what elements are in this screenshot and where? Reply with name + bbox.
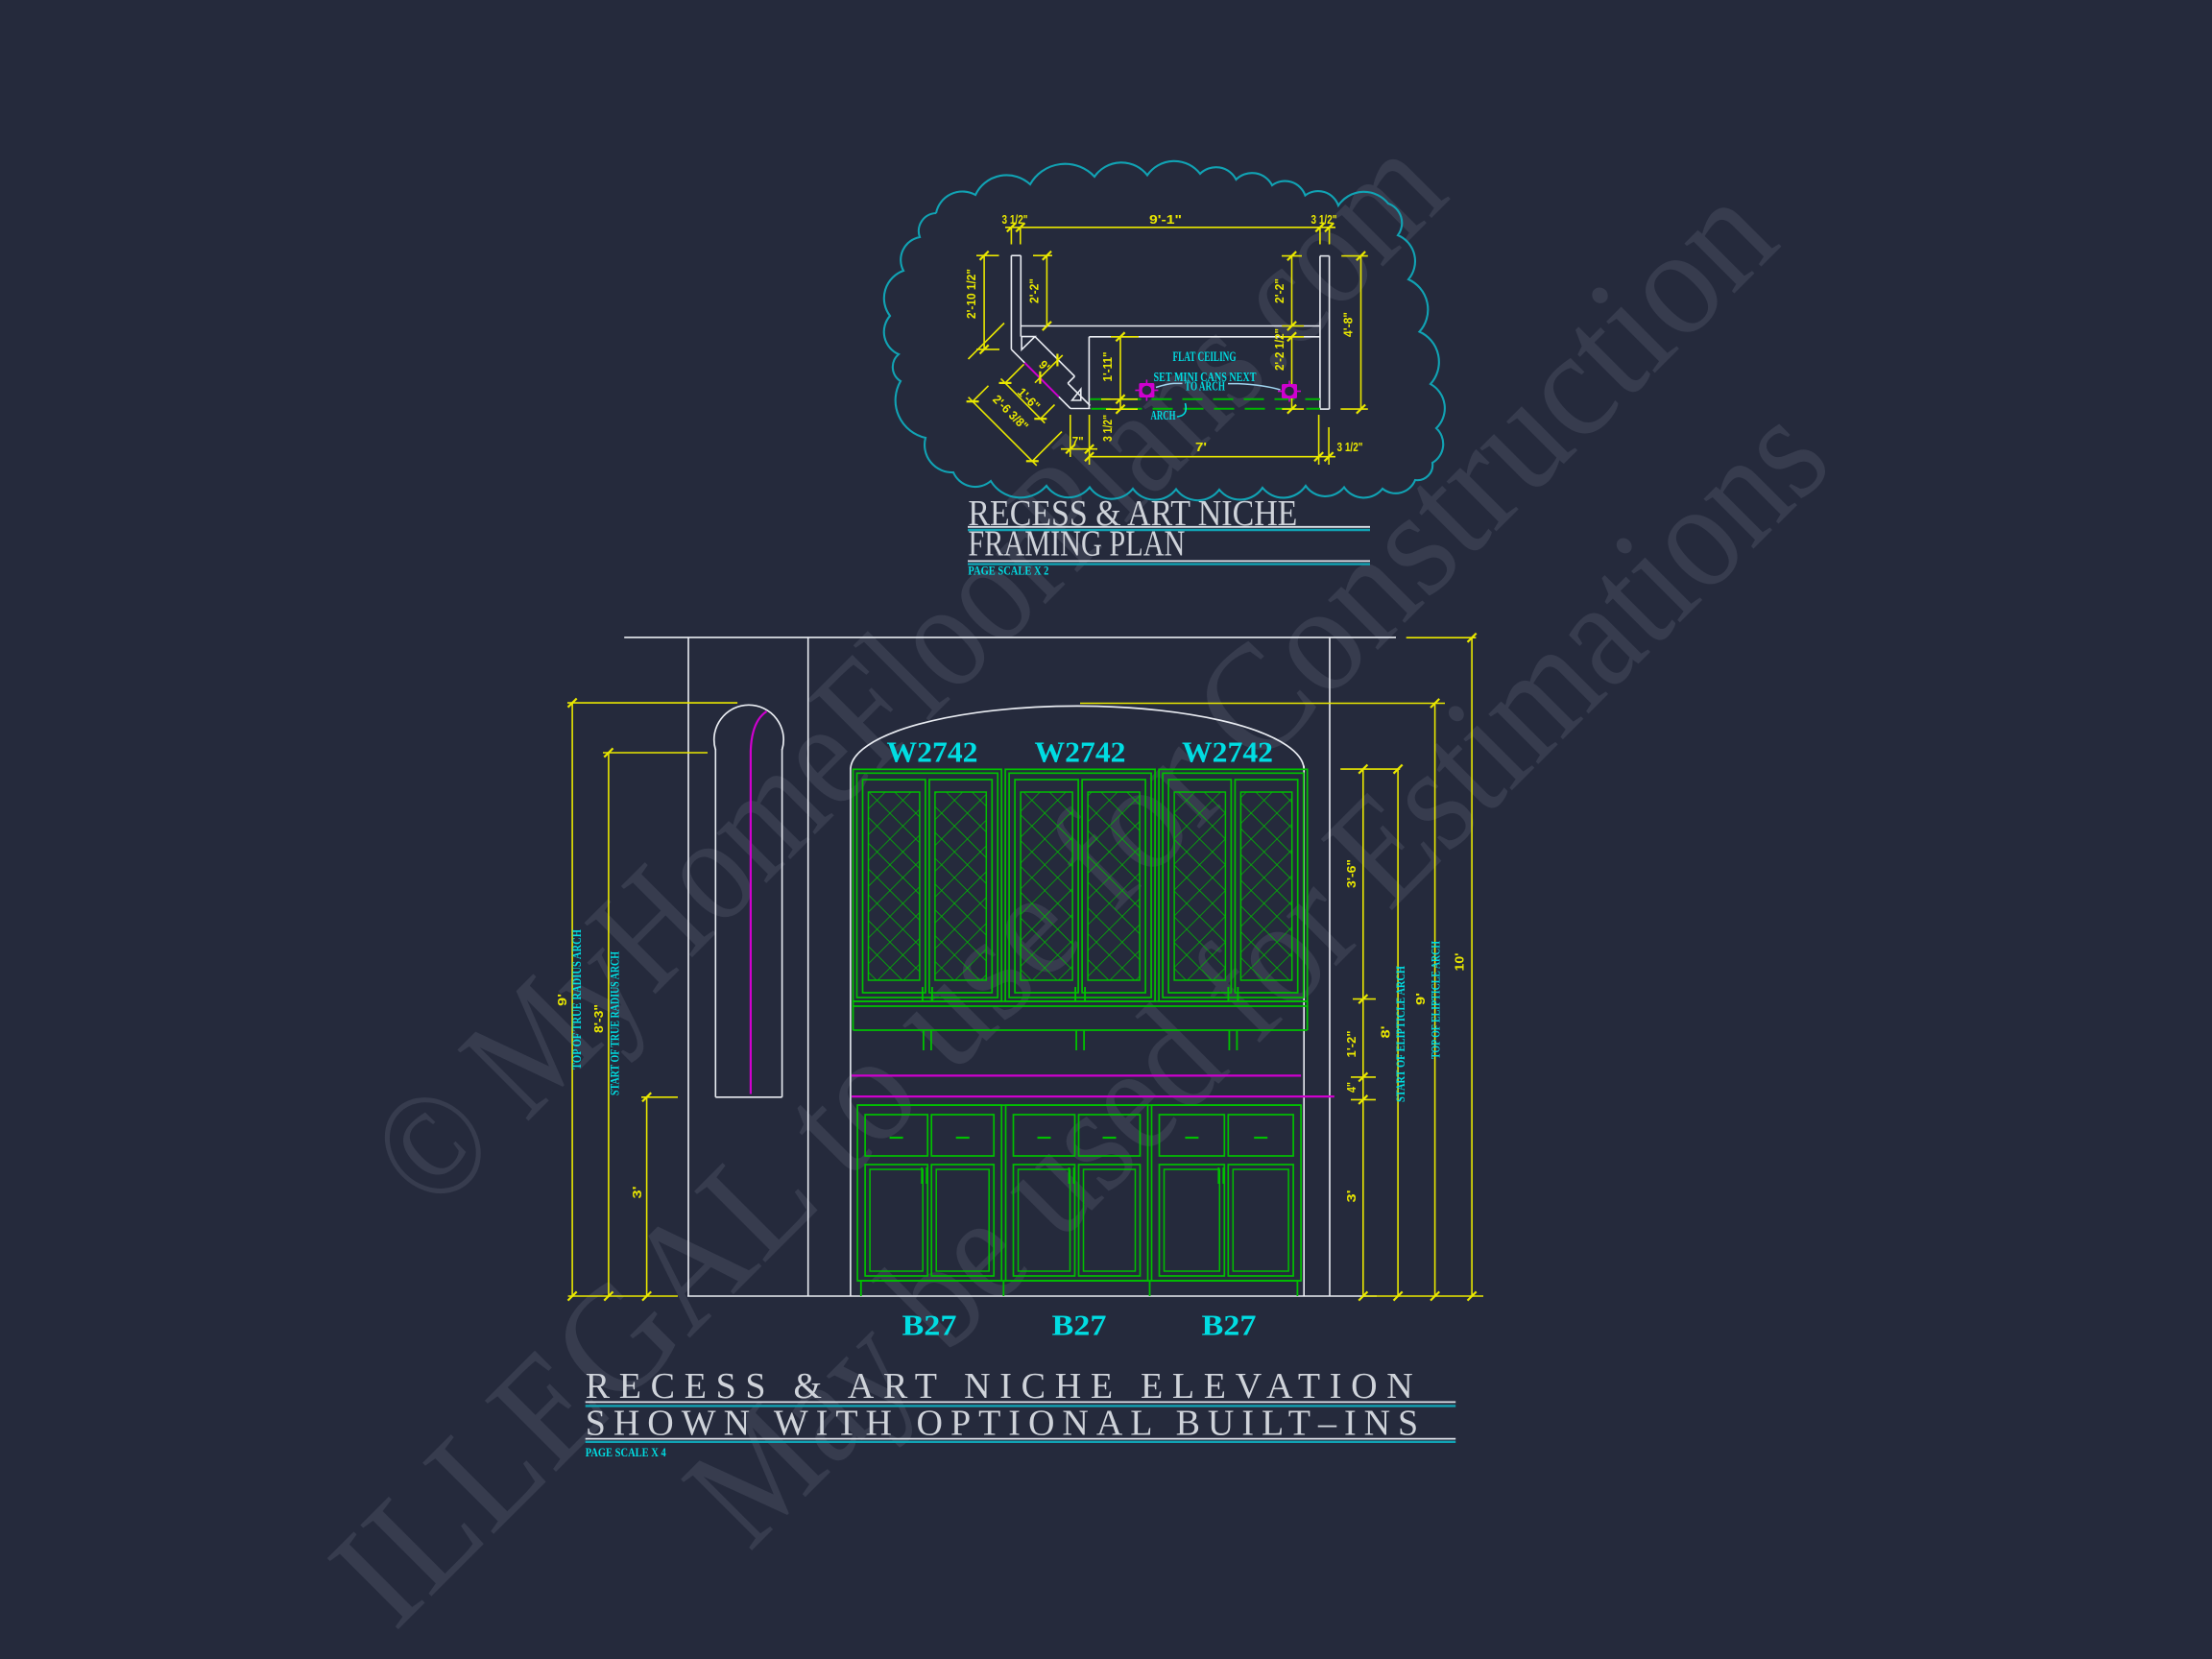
svg-text:SHOWN WITH OPTIONAL BUILT–INS: SHOWN WITH OPTIONAL BUILT–INS [586, 1404, 1426, 1444]
svg-text:10': 10' [1453, 953, 1467, 972]
svg-text:TOP OF ELIPTICLE ARCH: TOP OF ELIPTICLE ARCH [1430, 941, 1443, 1059]
svg-text:B27: B27 [902, 1309, 957, 1342]
svg-text:1'-6": 1'-6" [1015, 385, 1044, 414]
svg-text:9": 9" [1036, 357, 1054, 375]
svg-text:8': 8' [1379, 1026, 1393, 1039]
svg-text:TOP OF TRUE RADIUS ARCH: TOP OF TRUE RADIUS ARCH [570, 929, 584, 1070]
svg-text:2'-2 1/2": 2'-2 1/2" [1272, 328, 1286, 371]
svg-text:PAGE SCALE X 4: PAGE SCALE X 4 [586, 1445, 666, 1459]
svg-text:1'-11": 1'-11" [1100, 352, 1115, 382]
svg-text:FLAT CEILING: FLAT CEILING [1173, 349, 1237, 365]
svg-text:3 1/2": 3 1/2" [1100, 415, 1115, 442]
svg-text:3 1/2": 3 1/2" [1002, 212, 1028, 227]
svg-text:7": 7" [1072, 434, 1084, 448]
svg-text:4": 4" [1344, 1082, 1358, 1093]
svg-text:3'-6": 3'-6" [1344, 859, 1358, 888]
svg-text:PAGE SCALE X 2: PAGE SCALE X 2 [968, 564, 1048, 578]
svg-text:4'-8": 4'-8" [1341, 312, 1356, 337]
svg-text:2'-10 1/2": 2'-10 1/2" [964, 269, 978, 319]
svg-text:B27: B27 [1052, 1309, 1107, 1342]
svg-text:3': 3' [630, 1187, 644, 1199]
svg-text:7': 7' [1195, 440, 1207, 454]
svg-text:8'-3": 8'-3" [591, 1004, 606, 1033]
svg-text:3 1/2": 3 1/2" [1311, 212, 1337, 227]
svg-text:9': 9' [1413, 993, 1428, 1005]
svg-text:W2742: W2742 [887, 735, 978, 769]
svg-text:TO ARCH: TO ARCH [1185, 379, 1225, 394]
svg-text:2'-2": 2'-2" [1027, 278, 1042, 303]
svg-text:FRAMING PLAN: FRAMING PLAN [968, 524, 1185, 565]
svg-text:B27: B27 [1202, 1309, 1257, 1342]
svg-text:RECESS & ART NICHE ELEVATION: RECESS & ART NICHE ELEVATION [586, 1366, 1423, 1407]
svg-text:3 1/2": 3 1/2" [1337, 440, 1363, 454]
svg-text:START OF TRUE RADIUS ARCH: START OF TRUE RADIUS ARCH [609, 951, 622, 1095]
svg-text:1'-2": 1'-2" [1344, 1031, 1358, 1058]
svg-text:W2742: W2742 [1035, 735, 1126, 769]
svg-text:W2742: W2742 [1182, 735, 1273, 769]
svg-text:9': 9' [555, 994, 569, 1006]
svg-text:ARCH: ARCH [1151, 408, 1176, 422]
svg-text:START OF ELIPTICLE ARCH: START OF ELIPTICLE ARCH [1394, 966, 1407, 1102]
svg-text:3': 3' [1344, 1190, 1358, 1203]
svg-text:9'-1": 9'-1" [1149, 212, 1182, 227]
svg-text:2'-2": 2'-2" [1272, 278, 1286, 303]
